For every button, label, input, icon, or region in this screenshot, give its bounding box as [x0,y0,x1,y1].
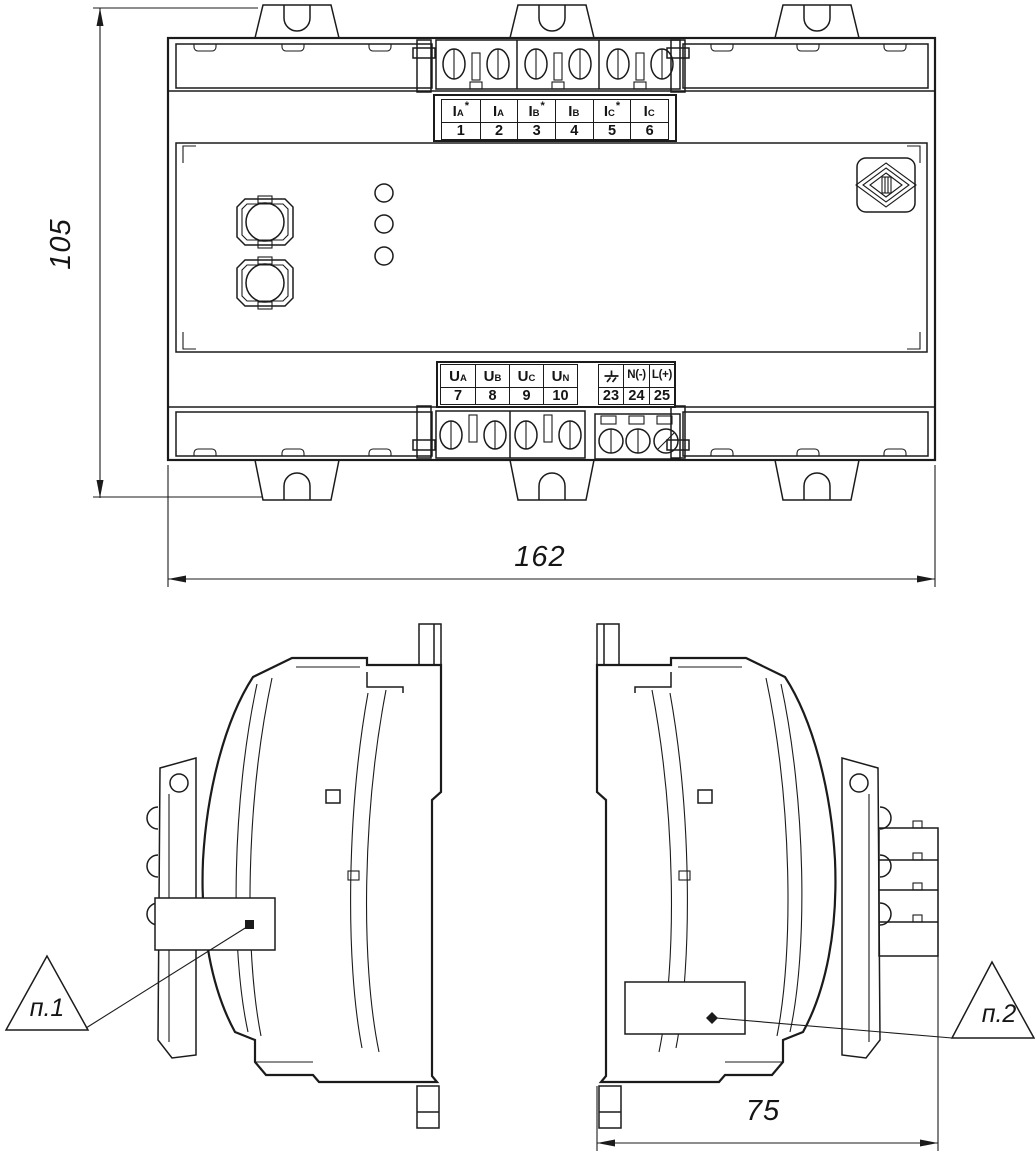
terminal-label: IC* [593,100,631,122]
terminal-number: 8 [475,387,509,404]
terminal-number: 3 [517,122,555,139]
terminal-label: UB [475,365,509,387]
led-3 [375,247,393,265]
button-2 [237,257,293,309]
voltage-terminal-block [436,411,585,458]
terminal-label [599,365,623,387]
terminal-number: 5 [593,122,631,139]
side-terminal-block [879,821,938,956]
dimension-depth-label: 75 [713,1095,813,1128]
dimension-height-105 [93,8,262,498]
terminal-label: UN [543,365,577,387]
top-mounting-ears [255,5,859,38]
terminal-label: UC [509,365,543,387]
terminal-label: IA [480,100,518,122]
manufacturer-logo-icon [856,158,916,212]
technical-drawing-page: 105 162 75 п.1 п.2 IA* IA IB* IB IC* IC … [0,0,1035,1156]
front-view [168,5,935,500]
terminal-label: L(+) [649,365,674,387]
terminal-number: 1 [442,122,480,139]
terminal-label: IC [630,100,668,122]
side-view-left [147,624,441,1128]
button-1 [237,196,293,248]
callout-p1-label: п.1 [17,994,77,1023]
drawing-canvas [0,0,1035,1156]
terminal-number: 23 [599,387,623,404]
earth-ground-icon [603,369,620,384]
terminal-number: 25 [649,387,674,404]
led-2 [375,215,393,233]
face-corner-marks [183,146,920,349]
terminal-label: N(-) [623,365,649,387]
top-wing-panels [176,44,928,88]
led-indicators [375,184,393,265]
terminal-number: 6 [630,122,668,139]
label-plate-2 [625,982,745,1034]
current-terminal-block [436,40,680,89]
terminal-number: 24 [623,387,649,404]
terminal-label: UA [441,365,475,387]
power-terminal-block [595,414,680,459]
terminal-label: IB [555,100,593,122]
terminal-label: IA* [442,100,480,122]
callout-p2-label: п.2 [967,1000,1031,1029]
dimension-height-label: 105 [45,204,79,284]
terminal-number: 4 [555,122,593,139]
terminal-number: 9 [509,387,543,404]
terminal-number: 2 [480,122,518,139]
current-terminal-table: IA* IA IB* IB IC* IC 1 2 3 4 5 6 [441,99,669,140]
terminal-number: 7 [441,387,475,404]
side-view-right [597,624,938,1128]
voltage-terminal-table: UA UB UC UN 7 8 9 10 [440,364,578,405]
terminal-number: 10 [543,387,577,404]
label-plate-1 [155,898,275,950]
bottom-mounting-ears [255,460,859,500]
terminal-label: IB* [517,100,555,122]
led-1 [375,184,393,202]
dimension-width-label: 162 [490,541,590,574]
power-terminal-table: N(-) L(+) 23 24 25 [598,364,675,405]
